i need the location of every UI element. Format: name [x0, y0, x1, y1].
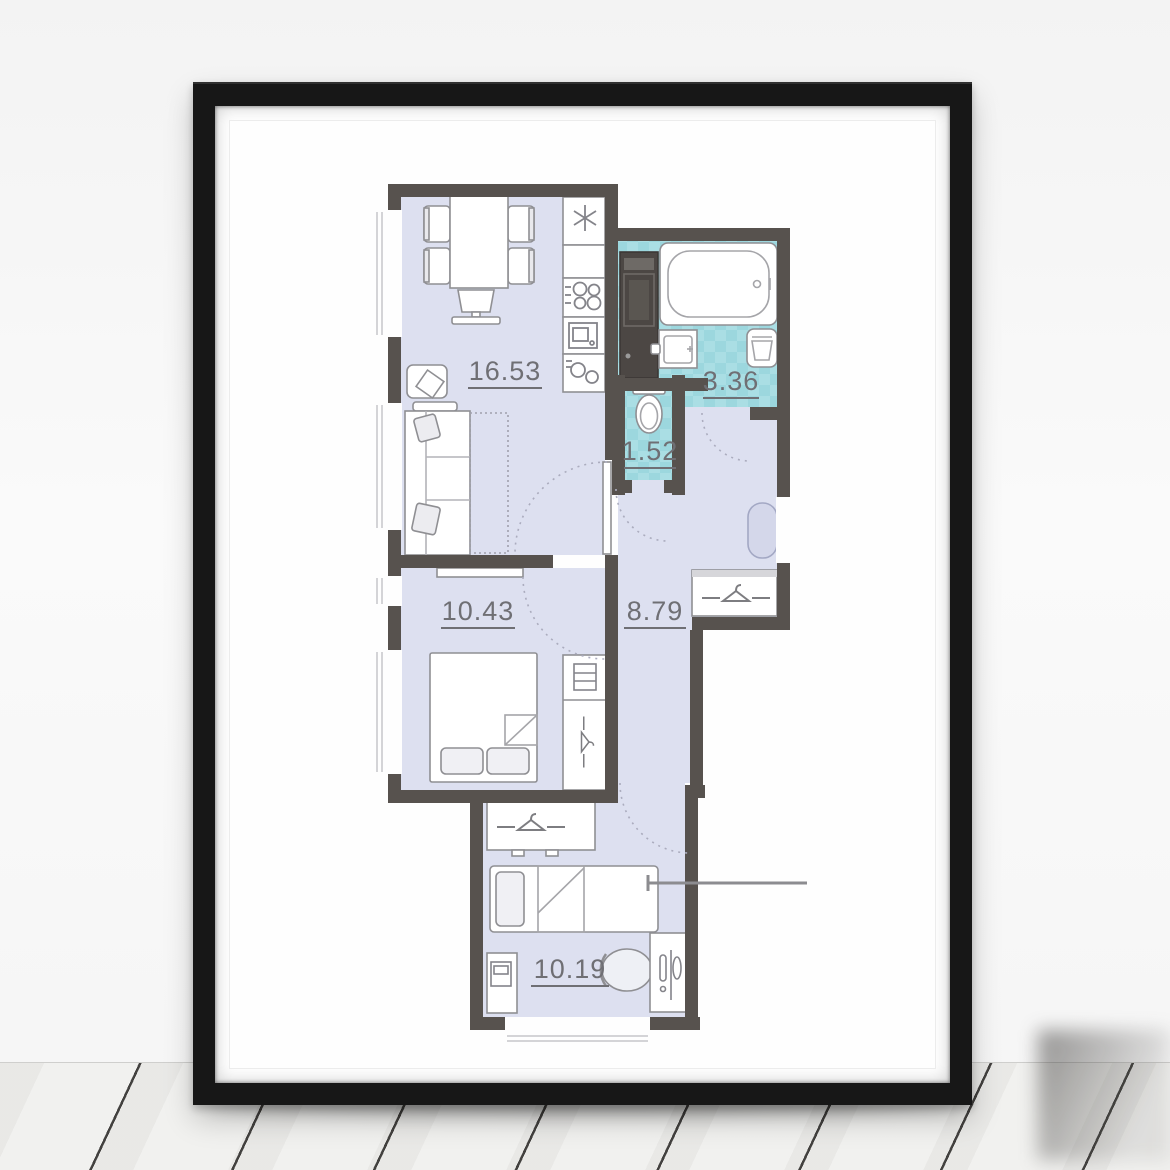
hallway-label: 8.79: [627, 596, 684, 626]
bedroom-door-leaf: [437, 568, 523, 577]
double-bed: [430, 653, 537, 782]
wc-label: 1.52: [622, 436, 679, 466]
hallway-junction-floor: [618, 780, 685, 805]
window: [386, 576, 402, 606]
bedroom-door-opening: [553, 555, 605, 568]
scene: 16.53 3.36 1.52 10.43 8.79 10.19: [0, 0, 1170, 1170]
window: [386, 210, 402, 337]
chair-back: [529, 208, 534, 240]
kids-wardrobe: [487, 800, 595, 856]
living-door-leaf: [603, 462, 611, 554]
bathtub: [660, 243, 777, 325]
sofa-headrest: [413, 402, 457, 411]
kids-room-label: 10.19: [534, 954, 607, 984]
end-chair: [458, 290, 494, 312]
chair-back: [529, 250, 534, 282]
chair-back: [424, 250, 429, 282]
bedroom-label: 10.43: [442, 596, 515, 626]
sofa-pillow: [411, 503, 440, 535]
counter: [563, 245, 605, 278]
window: [386, 650, 402, 774]
washer: [620, 252, 658, 378]
pouf: [748, 503, 777, 558]
living-kitchen-label: 16.53: [469, 356, 542, 386]
single-bed: [490, 866, 658, 932]
desk-chair: [601, 949, 652, 991]
end-chair-base: [452, 317, 500, 324]
hallway-corridor-floor: [618, 617, 692, 783]
opening: [776, 497, 791, 563]
window: [386, 403, 402, 530]
fridge: [563, 197, 605, 245]
hall-wardrobe: [692, 570, 777, 616]
bathroom-label: 3.36: [703, 366, 760, 396]
desk: [650, 933, 688, 1012]
laundry-basket: [747, 329, 777, 367]
floor-plan: 16.53 3.36 1.52 10.43 8.79 10.19: [0, 0, 1170, 1170]
window: [505, 1017, 650, 1030]
bedroom-wardrobe: [563, 655, 608, 790]
dining-table: [450, 196, 508, 288]
chair-back: [424, 208, 429, 240]
